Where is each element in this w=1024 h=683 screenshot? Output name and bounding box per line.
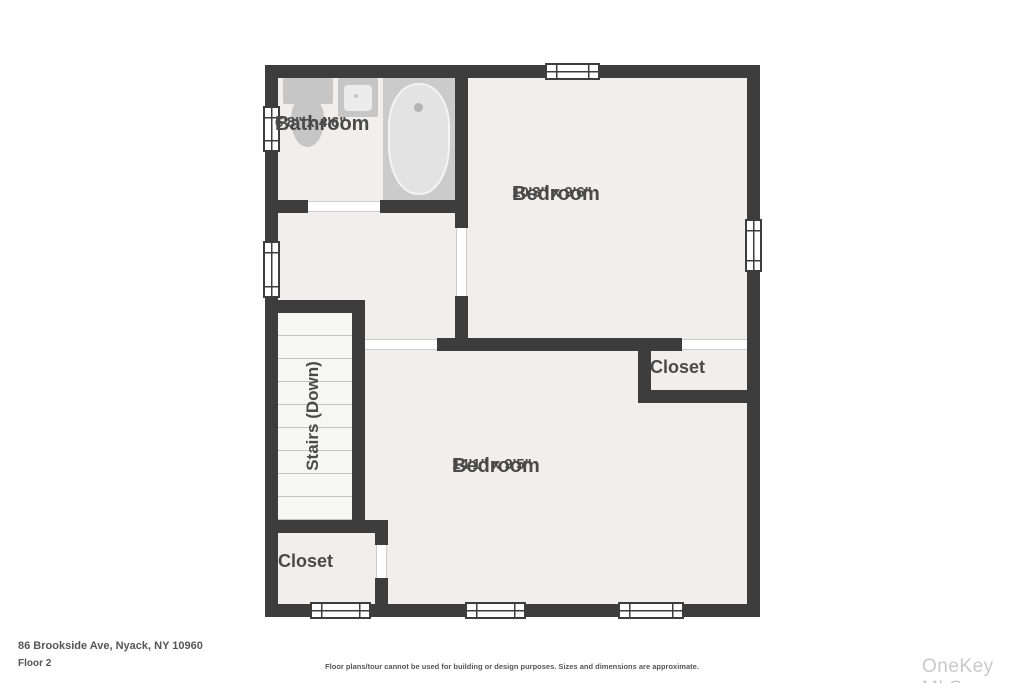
window-icon-closet-bottom — [310, 602, 371, 619]
property-address: 86 Brookside Ave, Nyack, NY 10960 — [18, 640, 203, 652]
door-opening-bedroom-bottom — [365, 339, 437, 350]
stairs-label: Stairs (Down) — [303, 361, 323, 471]
wall-closet-left-right-lower — [375, 578, 388, 604]
door-opening-bedroom-top — [456, 228, 467, 296]
sink-drain-icon — [354, 94, 358, 98]
onekey-mls-watermark: OneKey MLS — [922, 656, 1024, 683]
window-icon-bedroom-bottom-2 — [618, 602, 684, 619]
window-icon-bedroom-bottom-1 — [465, 602, 526, 619]
door-opening-bathroom — [308, 201, 380, 212]
bathroom-dims: 6'8" x 4'6" — [275, 112, 346, 133]
wall-closet-left-right-upper — [375, 520, 388, 545]
wall-bathroom-bottom-left — [278, 200, 308, 213]
bathtub-icon — [388, 83, 450, 195]
closet-right-name: Closet — [650, 357, 705, 378]
wall-bathroom-bottom-right — [380, 200, 468, 213]
wall-outer-right — [747, 65, 760, 617]
sink-basin — [344, 85, 372, 111]
door-opening-closet-right — [682, 339, 747, 350]
window-icon-bedroom-top — [545, 63, 600, 80]
floor-number: Floor 2 — [18, 658, 51, 669]
bedroom-bottom-dims: 14'1" x 9'5" — [452, 454, 532, 475]
wall-closet-right-bottom — [638, 390, 747, 403]
wall-stairs-right — [352, 300, 365, 520]
window-icon-hallway-left — [263, 241, 280, 298]
door-opening-closet-left — [376, 545, 387, 578]
bathtub-faucet-icon — [414, 103, 423, 112]
bedroom-top-dims: 10'3" x 9'6" — [512, 182, 592, 203]
floor-plan: Bathroom 6'8" x 4'6" Bedroom 10'3" x 9'6… — [265, 65, 760, 617]
wall-outer-top — [265, 65, 760, 78]
wall-stairs-bottom — [278, 520, 388, 533]
window-icon-bedroom-right — [745, 219, 762, 272]
disclaimer-text: Floor plans/tour cannot be used for buil… — [325, 662, 699, 671]
floorplan-page: Bathroom 6'8" x 4'6" Bedroom 10'3" x 9'6… — [0, 0, 1024, 683]
closet-left-name: Closet — [278, 551, 333, 572]
